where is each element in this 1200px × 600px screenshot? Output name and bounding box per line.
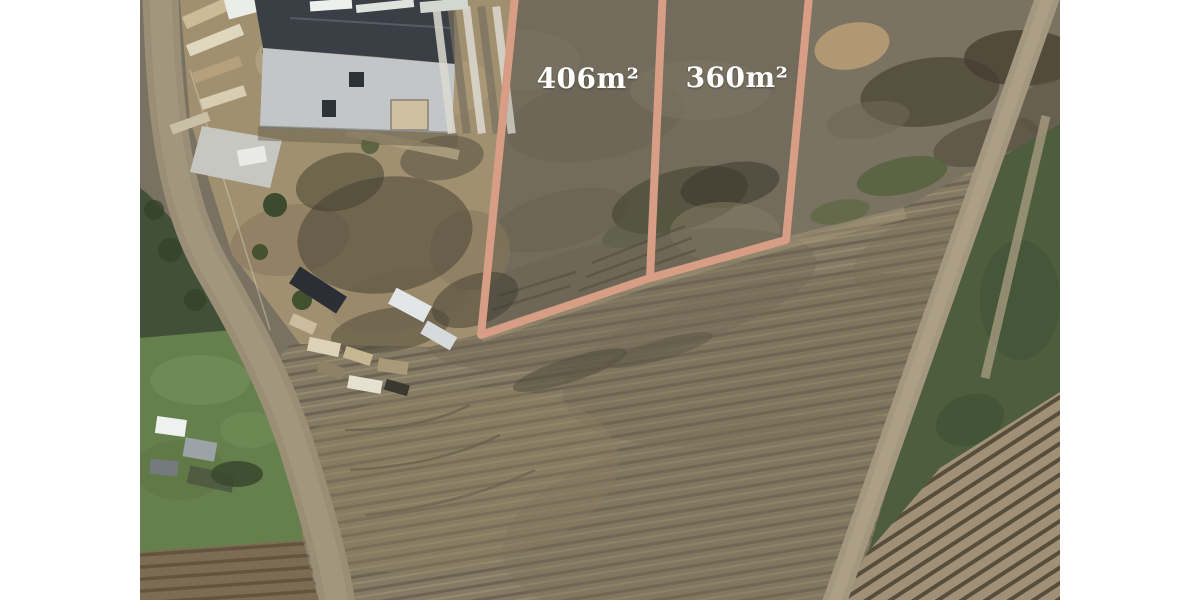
bush [252,244,268,260]
right-white-margin [1060,0,1200,600]
garage-opening [391,100,428,130]
window [349,72,364,87]
plot-label-406: 406m² [537,62,640,95]
satellite-photo-canvas: 406m² 360m² [140,0,1060,600]
aerial-listing-image: 406m² 360m² [0,0,1200,600]
satellite-photo: 406m² 360m² [140,0,1060,600]
window [322,100,336,117]
house-under-construction [252,0,458,147]
left-white-margin [0,0,140,600]
bush [263,193,287,217]
plot-label-360: 360m² [686,61,789,94]
